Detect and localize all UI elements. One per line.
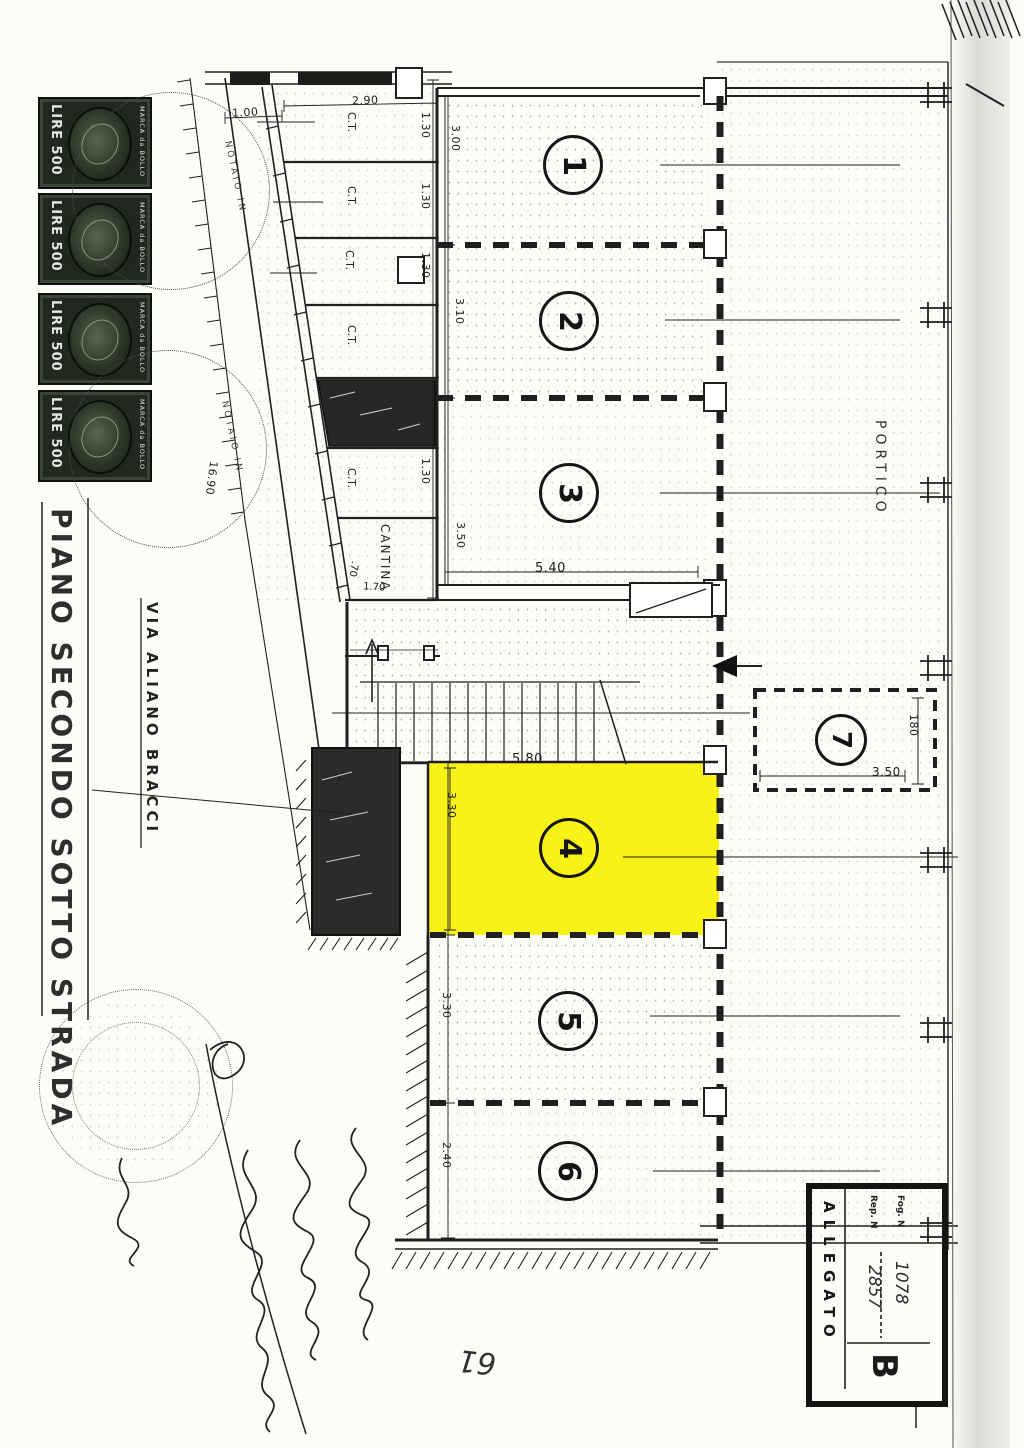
dim-room4-width: 5.80 xyxy=(512,752,543,767)
wall-fill-segment xyxy=(298,72,392,85)
dim-room3: 3.50 xyxy=(454,522,467,549)
wall-fill-segment xyxy=(230,72,270,85)
dim-room4: 3.30 xyxy=(445,792,458,819)
allegato-field1-label: Fog. N xyxy=(895,1195,905,1228)
dim-cell-width: 2.90 xyxy=(352,94,379,108)
dim-vestibule: 1.70 xyxy=(363,581,386,594)
room-number: 4 xyxy=(552,838,587,859)
ct-label: C.T. xyxy=(345,468,358,488)
ct-label: C.T. xyxy=(343,250,356,270)
room-4-circle: 4 xyxy=(539,818,599,878)
street-label: VIA ALIANO BRACCI xyxy=(143,602,161,835)
room-number: 1 xyxy=(556,155,591,176)
pilaster xyxy=(396,68,422,98)
corridor-leaders xyxy=(257,122,323,273)
room-number: 2 xyxy=(552,311,587,332)
planter xyxy=(312,748,400,935)
dim-cell: 1.30 xyxy=(419,183,432,210)
vestibule-walls xyxy=(345,646,440,660)
scanned-plan-page: LIRE 500 MARCA da BOLLO LIRE 500 MARCA d… xyxy=(0,0,1024,1448)
allegato-letter: B xyxy=(864,1353,904,1379)
page-number: 61 xyxy=(456,1342,498,1381)
allegato-field2-label: Rep. N xyxy=(868,1195,878,1229)
dim-room2: 3.10 xyxy=(453,298,466,325)
allegato-stamp-box: ALLEGATO Fog. N Rep. N 1078 2857 B xyxy=(806,1183,948,1407)
floor-title: PIANO SECONDO SOTTO STRADA xyxy=(45,508,78,1129)
portico-label: PORTICO xyxy=(872,420,888,517)
room-number: 6 xyxy=(551,1161,586,1182)
allegato-side-label: ALLEGATO xyxy=(820,1201,838,1344)
ct-label: C.T. xyxy=(345,325,358,345)
ct-label: C.T. xyxy=(345,112,358,132)
room-3-circle: 3 xyxy=(539,463,599,523)
dim-corridor: 1.00 xyxy=(232,105,259,119)
signatures xyxy=(118,1042,373,1434)
dark-cell xyxy=(318,380,435,446)
dim-cell: 1.30 xyxy=(419,112,432,139)
stair-hall-top-wall xyxy=(437,583,720,617)
door-leader-lines xyxy=(623,165,958,1171)
bottom-hatch xyxy=(392,1252,710,1269)
dim-room7-depth: 180 xyxy=(907,714,920,737)
dashed-partitions xyxy=(430,245,704,1103)
room-1-circle: 1 xyxy=(543,135,603,195)
dim-room1: 3.00 xyxy=(449,125,462,152)
allegato-value2: 2857 xyxy=(864,1265,884,1308)
dim-room6: 2.40 xyxy=(440,1142,453,1169)
room-2-circle: 2 xyxy=(539,291,599,351)
stair-up-arrow xyxy=(366,640,378,702)
dim-cell: 1.30 xyxy=(419,458,432,485)
room-number: 5 xyxy=(551,1011,586,1032)
room-6-circle: 6 xyxy=(538,1141,598,1201)
dim-room7-width: 3.50 xyxy=(872,765,901,779)
allegato-value1: 1078 xyxy=(891,1261,911,1304)
top-wall xyxy=(437,88,948,96)
dim-room5: 3.30 xyxy=(440,992,453,1019)
left-wall-hatch xyxy=(406,952,428,1235)
room-number: 3 xyxy=(552,483,587,504)
room-5-circle: 5 xyxy=(538,991,598,1051)
scan-edge-band xyxy=(950,0,1010,1448)
entrance-arrow xyxy=(712,655,737,677)
room-number: 7 xyxy=(826,731,856,749)
ct-label: C.T. xyxy=(345,186,358,206)
dim-room3-width: 5.40 xyxy=(535,561,566,576)
boundary-line xyxy=(190,78,310,930)
dim-chains xyxy=(225,80,698,1238)
stairs xyxy=(360,680,640,764)
room-7-circle: 7 xyxy=(815,714,867,766)
dim-cell: 1.30 xyxy=(419,252,432,279)
portico-columns xyxy=(920,82,952,1243)
